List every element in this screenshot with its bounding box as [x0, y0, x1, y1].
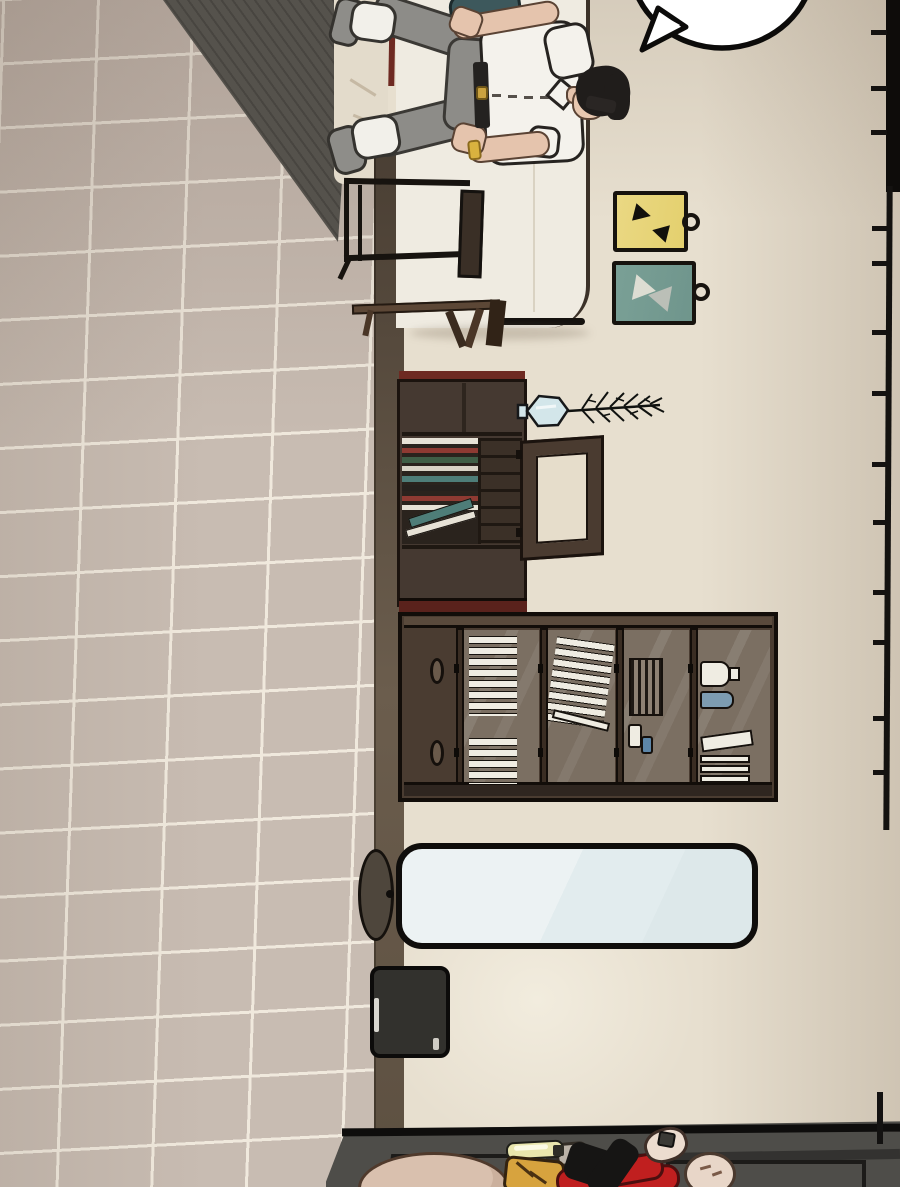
- wall-edge-band: [886, 0, 900, 192]
- soju-bottle: [506, 1139, 565, 1160]
- comic-panel: [0, 0, 900, 1187]
- man-hand-on-knee: [446, 3, 486, 40]
- soju-cap: [553, 1145, 564, 1156]
- display-cabinet: [398, 612, 778, 802]
- cabinet-hinge: [614, 664, 619, 673]
- coat-rack-bottom-bar: [344, 251, 472, 261]
- wall-edge-tick: [872, 462, 887, 467]
- wall-edge-tick: [873, 640, 887, 645]
- cabinet-hinge: [688, 748, 693, 757]
- soju-highlight: [514, 1144, 548, 1151]
- floor-shading-top: [560, 0, 900, 220]
- wall-edge-tick: [873, 770, 887, 775]
- sneaker-sole: [327, 0, 368, 49]
- cabinet-top-rail: [404, 617, 772, 628]
- lying-bottle-blue: [700, 691, 734, 709]
- shirt-fold: [529, 1171, 547, 1185]
- bottle-row-group-tilted: [545, 636, 614, 729]
- tilted-bar: [552, 709, 610, 732]
- white-wedge: [700, 729, 754, 752]
- wall-edge-tick: [873, 520, 887, 525]
- red-shirt-torso: [556, 1164, 681, 1187]
- bookshelf-bottom-trim: [399, 598, 527, 612]
- red-man-head: [684, 1152, 736, 1187]
- sign-knob: [692, 283, 710, 301]
- cabinet-glass-section: [547, 630, 615, 782]
- man-hair: [573, 62, 633, 119]
- table-shadow-band: [546, 1149, 900, 1165]
- belt: [473, 62, 490, 128]
- doorframe-jog: [550, 144, 580, 149]
- coat-rack-foot: [338, 258, 352, 280]
- black-sleeve: [561, 1140, 618, 1187]
- wall-edge-tick: [872, 391, 887, 396]
- bedding-wrinkle: [353, 114, 386, 130]
- man-hair-side: [604, 74, 630, 120]
- cabinet-door-handle: [430, 658, 444, 684]
- vase-with-branch: [512, 378, 672, 440]
- man-face: [572, 86, 606, 120]
- table-surface: [326, 1120, 900, 1187]
- bookshelf-top-trim: [399, 371, 525, 380]
- cabinet-bottom-rail: [404, 782, 772, 796]
- tile-shading: [0, 0, 377, 1187]
- green-wall-sign: [612, 261, 696, 325]
- cabinet-divider: [456, 628, 464, 784]
- stool-leg: [464, 308, 484, 349]
- cabinet-door-handle: [430, 740, 444, 766]
- man-arm-upper: [451, 0, 562, 41]
- lying-bottle-white: [700, 661, 730, 687]
- man-shirt-cuff: [526, 124, 561, 159]
- man-neck: [566, 86, 584, 104]
- man-leg-upper: [367, 0, 490, 65]
- wall-edge-tick: [872, 261, 887, 266]
- sneaker-sole: [324, 122, 370, 178]
- man-shirt-sleeve: [541, 20, 597, 82]
- gray-hand: [555, 1141, 589, 1168]
- sign-triangle-right: [632, 203, 653, 225]
- bench-shadow: [410, 326, 590, 340]
- sign-triangle-left: [650, 221, 670, 242]
- table-top-edge: [342, 1124, 900, 1137]
- bedding-wrinkle: [349, 78, 376, 96]
- white-bar: [700, 755, 750, 763]
- cabinet-divider: [540, 628, 548, 784]
- table-panel: [666, 1160, 866, 1187]
- black-sleeve-raised: [584, 1135, 643, 1187]
- bedding-strip: [334, 0, 388, 184]
- tilted-book: [408, 498, 474, 528]
- coat-rack-post: [358, 185, 362, 261]
- yellow-wall-sign: [613, 191, 688, 252]
- bottle-row-group: [469, 636, 517, 716]
- stool-seat: [352, 299, 500, 314]
- table-panel-line: [656, 1138, 663, 1187]
- sign-bowtie-a: [632, 274, 658, 303]
- man-arm-lower: [467, 130, 551, 164]
- bookshelf-divider: [478, 438, 481, 544]
- bald-head: [358, 1152, 510, 1187]
- table-leg-line: [877, 1092, 883, 1144]
- tiled-wall: [0, 0, 377, 1187]
- wall-mirror: [396, 843, 758, 949]
- man-glasses: [585, 95, 617, 114]
- bracelet: [467, 139, 482, 160]
- coat-rack-panel: [457, 190, 484, 279]
- tilted-book: [405, 510, 476, 538]
- bookshelf-shelf-line: [402, 545, 522, 549]
- cabinet-hinge: [614, 748, 619, 757]
- stool-leg: [445, 310, 467, 348]
- black-wall-box: [370, 966, 450, 1058]
- small-jar-blue: [641, 736, 653, 754]
- cabinet-hinge: [538, 664, 543, 673]
- man-shirt: [478, 19, 585, 166]
- bench-bottom-edge: [497, 318, 585, 325]
- floor-shading-right: [700, 0, 900, 1187]
- wall-edge-tick: [873, 590, 887, 595]
- lying-bottle-cap: [729, 667, 740, 681]
- red-shirt-upper: [596, 1150, 666, 1187]
- man-hip: [442, 36, 508, 134]
- shirt-fold: [516, 1161, 535, 1177]
- door-hinge: [516, 450, 522, 459]
- cabinet-glass-section: [463, 630, 539, 782]
- bottle-row-group: [469, 738, 517, 784]
- cabinet-glass-section: [623, 630, 689, 782]
- wall-edge-tick: [873, 716, 887, 721]
- cabinet-hinge: [538, 748, 543, 757]
- table-panel: [385, 1154, 643, 1187]
- stool-leg: [362, 310, 373, 337]
- man-hand-lower: [449, 120, 489, 157]
- cabinet-divider: [690, 628, 698, 784]
- maroon-edge-line: [388, 0, 396, 86]
- white-bar: [700, 765, 750, 773]
- mirror-knob-dot: [386, 890, 394, 898]
- red-man-eye: [712, 1170, 722, 1176]
- bookshelf-groove: [462, 383, 466, 433]
- bookshelf-slats: [481, 438, 522, 544]
- shirt-button: [540, 96, 549, 99]
- wall-edge-tick: [871, 130, 887, 135]
- cabinet-hinge: [454, 664, 459, 673]
- door-hinge: [516, 528, 522, 537]
- tile-grid: [0, 0, 377, 1187]
- small-jar-white: [628, 724, 642, 748]
- sign-bowtie-b: [646, 282, 672, 311]
- sneaker-white: [347, 0, 398, 45]
- cabinet-hinge: [454, 748, 459, 757]
- shirt-button: [524, 96, 533, 99]
- dark-ceiling-slab: [0, 0, 420, 260]
- belt-buckle: [476, 86, 488, 100]
- stick-rack: [629, 658, 663, 716]
- cabinet-glass-section: [697, 630, 770, 782]
- shirt-button: [492, 94, 501, 97]
- glass-door-window: [536, 452, 588, 544]
- wall-edge-line: [883, 186, 892, 830]
- raised-hand: [640, 1122, 692, 1168]
- red-man-brow: [700, 1165, 711, 1171]
- speech-bubble: [590, 0, 850, 72]
- bench-crease: [533, 160, 535, 312]
- floor-highlight: [377, 850, 697, 1150]
- wall-edge-tick: [872, 330, 887, 335]
- mirror-knob: [358, 849, 394, 941]
- baseboard: [374, 148, 404, 1140]
- shirt-button: [508, 95, 517, 98]
- sign-knob: [682, 213, 700, 231]
- box-notch: [433, 1038, 439, 1050]
- cabinet-hinge: [688, 664, 693, 673]
- wall-edge-tick: [871, 30, 887, 35]
- mustard-shirt: [502, 1155, 565, 1187]
- bedding-wrinkle: [346, 148, 376, 158]
- shot-glass: [657, 1131, 676, 1149]
- man-leg-lower: [369, 90, 494, 159]
- sneaker-white: [349, 112, 404, 162]
- white-bar: [700, 775, 750, 783]
- teal-jacket-blob: [447, 0, 529, 71]
- bookshelf-shelf-line: [402, 432, 522, 436]
- stool-leg: [486, 299, 507, 346]
- wall-edge-tick: [871, 86, 887, 91]
- coat-rack-post: [344, 182, 349, 262]
- white-bench: [396, 0, 590, 328]
- glass-door-frame: [520, 435, 604, 561]
- books-on-shelf: [402, 438, 478, 544]
- wall-edge-tick: [872, 226, 887, 231]
- collar: [545, 77, 579, 111]
- box-slit: [374, 998, 379, 1032]
- bookshelf-body: [397, 379, 527, 607]
- cabinet-divider: [616, 628, 624, 784]
- coat-rack-top-bar: [344, 178, 470, 186]
